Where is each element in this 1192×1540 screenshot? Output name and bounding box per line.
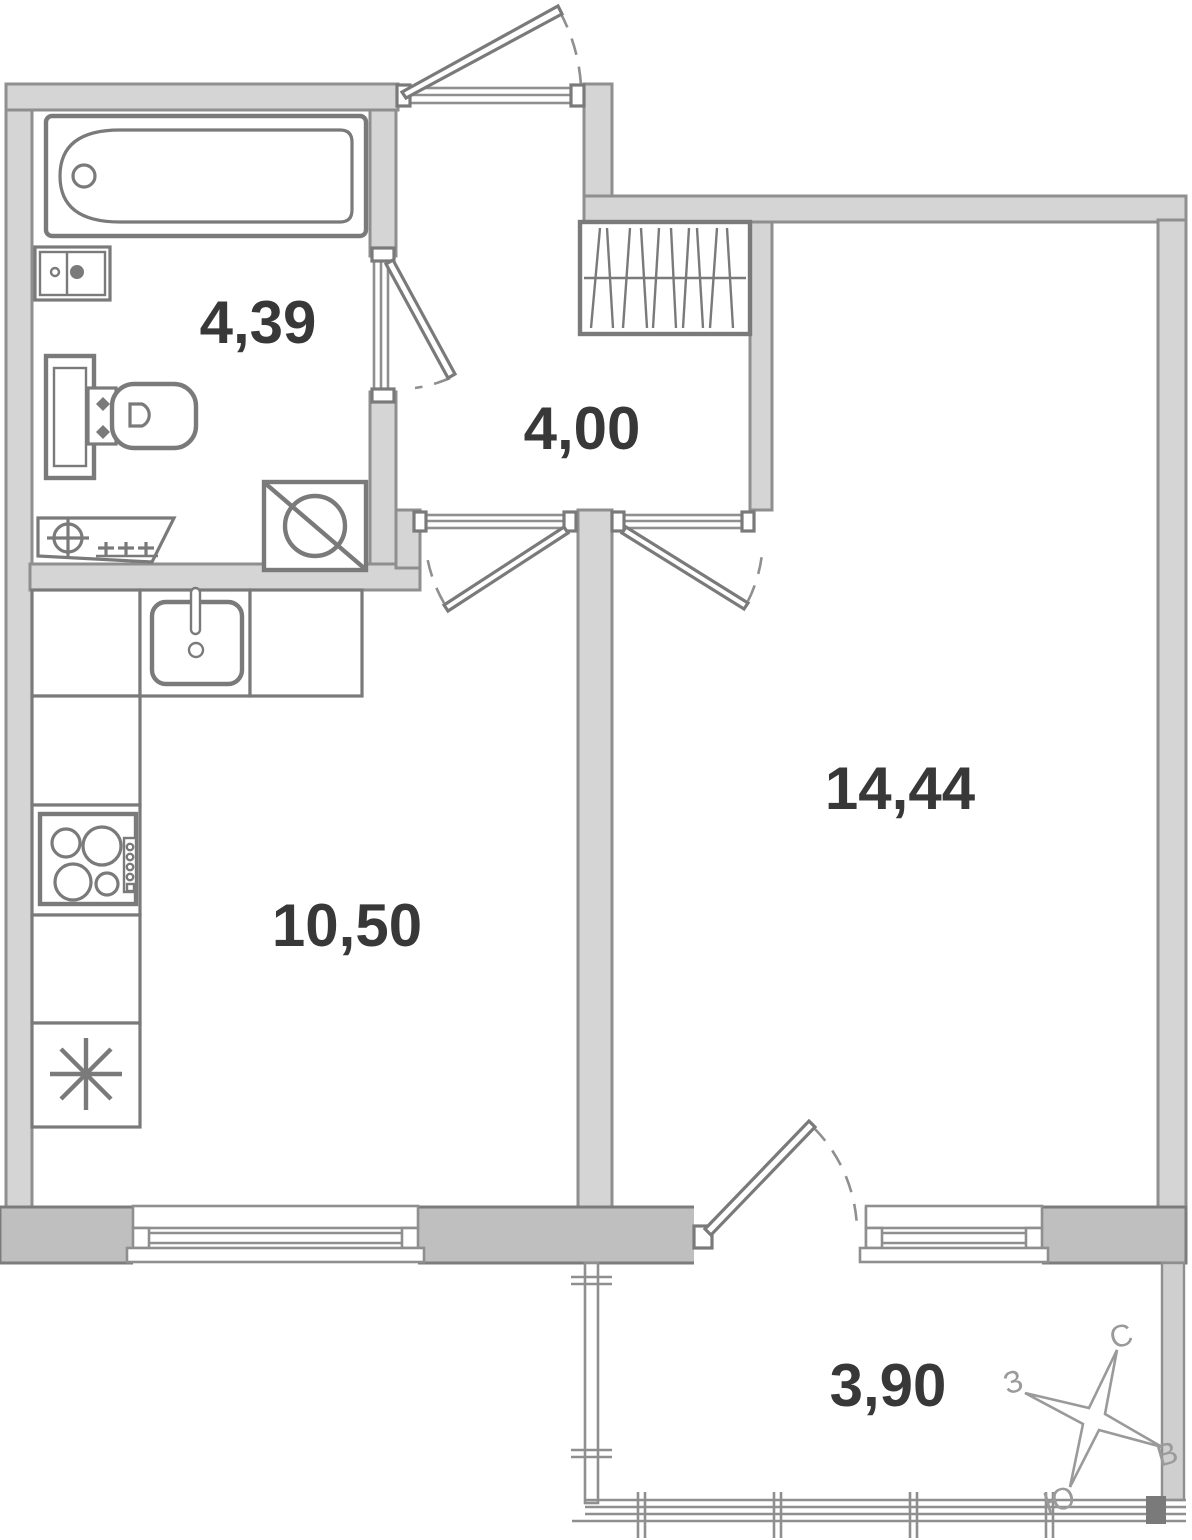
- wall-upper-horizontal: [584, 196, 1186, 222]
- counter-cell: [32, 696, 140, 805]
- entrance-door-swing-arc: [560, 12, 581, 86]
- radiator-manifold: [38, 517, 174, 562]
- kitchen-window-end-block: [402, 1228, 418, 1248]
- bathroom-door-frame: [372, 248, 394, 261]
- kitchen-window: [127, 1204, 424, 1265]
- entrance-door-frame: [571, 85, 584, 106]
- living-room-window: [860, 1204, 1048, 1265]
- bathroom-door: [372, 248, 455, 402]
- wall-kitchen-living-divider: [578, 510, 612, 1207]
- bathroom-door-frame: [372, 389, 394, 402]
- balcony-railing-left: [585, 1263, 598, 1503]
- wall-exterior-top: [6, 84, 398, 110]
- kitchen-sink-faucet: [191, 588, 200, 634]
- living-window-end-block: [866, 1228, 882, 1248]
- wardrobe: [580, 222, 750, 334]
- room-label-hallway: 4,00: [524, 395, 641, 462]
- entrance-door-leaf: [402, 6, 562, 98]
- entrance-door: [397, 6, 584, 106]
- toilet-bowl: [112, 384, 196, 448]
- room-label-kitchen: 10,50: [272, 892, 422, 959]
- compass-star: [1025, 1350, 1162, 1487]
- bathroom-door-swing-arc: [415, 378, 450, 388]
- compass-label-north: С: [1106, 1316, 1137, 1356]
- manifold-pins: [98, 542, 154, 557]
- wall-exterior-right: [1158, 220, 1186, 1207]
- kitchen-door-frame: [414, 512, 426, 531]
- wall-exterior-left: [6, 84, 32, 1207]
- bathroom-door-leaf: [386, 260, 455, 378]
- balcony-door: [694, 1121, 866, 1265]
- vanity-drain: [70, 265, 84, 279]
- living-window-recess: [866, 1206, 1042, 1228]
- bathtub: [46, 116, 366, 236]
- compass-rose: С З В Ю: [999, 1316, 1182, 1521]
- living-door-frame: [742, 512, 754, 531]
- wall-bathroom-hall-lower: [370, 392, 396, 590]
- living-window-sill: [860, 1248, 1048, 1262]
- kitchen-door-leaf: [444, 527, 568, 611]
- toilet: [46, 356, 196, 478]
- kitchen-window-recess: [133, 1206, 418, 1228]
- floor-plan-page: С З В Ю 4,39 4,00 14,44 10,50 3,90: [0, 0, 1192, 1540]
- counter-cell: [32, 915, 140, 1023]
- washing-machine: [264, 482, 366, 570]
- living-door-swing-arc: [748, 554, 762, 601]
- wall-entrance-column: [584, 84, 612, 196]
- room-label-living-room: 14,44: [825, 755, 976, 822]
- stove: [40, 814, 136, 904]
- kitchen-sink: [152, 588, 242, 684]
- floor-plan: С З В Ю 4,39 4,00 14,44 10,50 3,90: [0, 0, 1192, 1540]
- balcony-corner-post: [1146, 1496, 1166, 1524]
- living-door-frame: [612, 512, 624, 531]
- counter-cell: [250, 590, 362, 696]
- kitchen-door: [414, 512, 576, 611]
- kitchen-door-swing-arc: [426, 550, 444, 603]
- living-room-door: [612, 512, 762, 609]
- wall-bathroom-hall-upper: [370, 110, 396, 256]
- balcony-railing-bottom: [572, 1492, 1186, 1538]
- living-door-leaf: [622, 527, 748, 609]
- wall-hallway-right: [750, 222, 772, 510]
- kitchen-window-sill: [127, 1248, 424, 1262]
- vanity-sink: [35, 247, 110, 300]
- counter-cell: [32, 590, 140, 696]
- compass-label-west: З: [999, 1363, 1027, 1402]
- room-label-balcony: 3,90: [830, 1352, 947, 1419]
- room-label-bathroom: 4,39: [200, 289, 317, 356]
- living-window-end-block: [1026, 1228, 1042, 1248]
- kitchen-window-end-block: [133, 1228, 149, 1248]
